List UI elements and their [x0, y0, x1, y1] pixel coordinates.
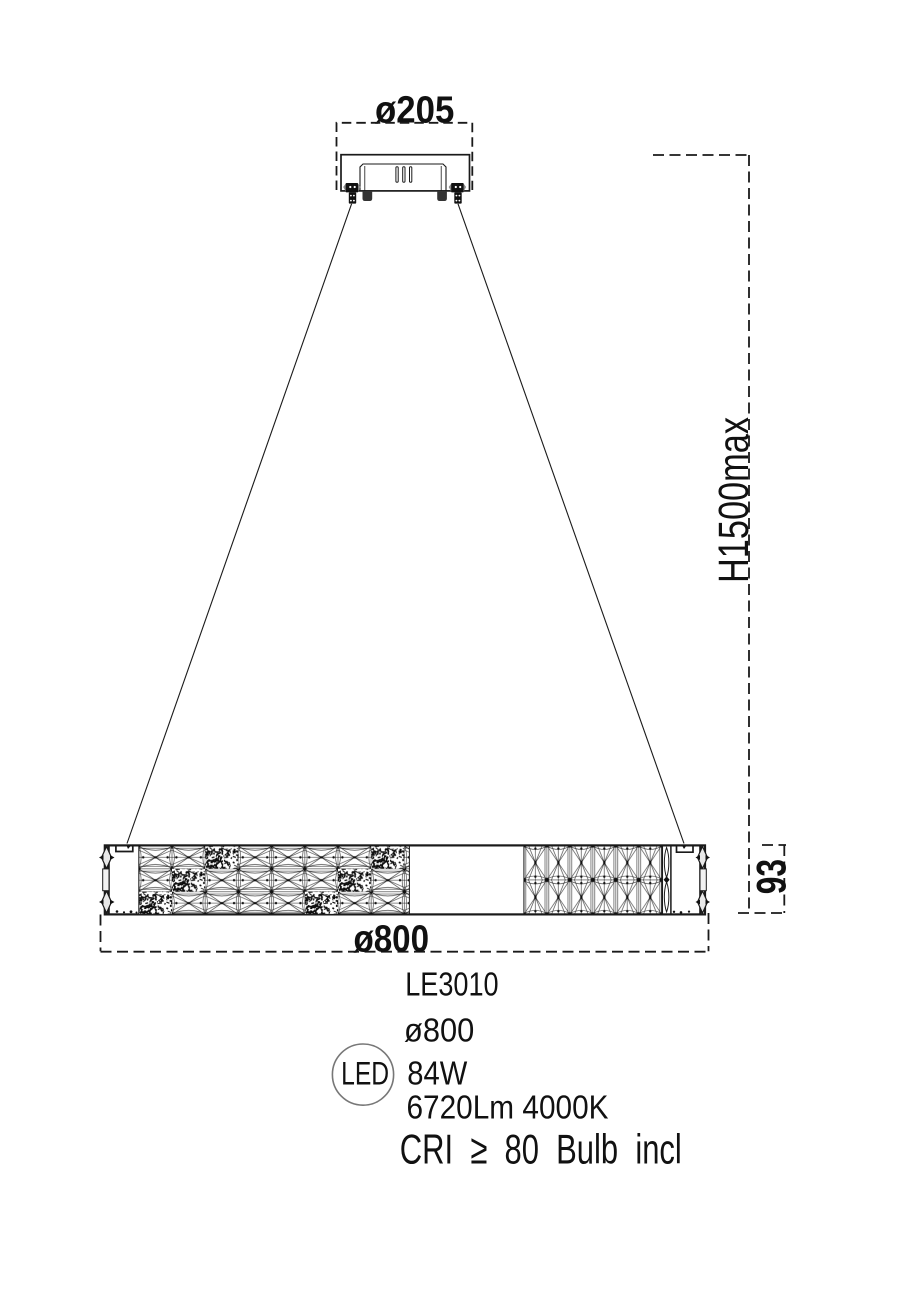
- svg-text:LE3010: LE3010: [405, 967, 498, 1004]
- svg-text:H1500max: H1500max: [710, 417, 758, 583]
- svg-text:6720Lm 4000K: 6720Lm 4000K: [407, 1090, 609, 1127]
- svg-text:LED: LED: [341, 1056, 389, 1092]
- svg-text:ø205: ø205: [375, 89, 454, 131]
- svg-text:ø800: ø800: [404, 1013, 474, 1050]
- svg-text:93: 93: [748, 859, 795, 894]
- svg-text:ø800: ø800: [354, 919, 430, 961]
- svg-text:84W: 84W: [407, 1056, 467, 1093]
- svg-text:CRI ≥ 80 Bulb incl: CRI ≥ 80 Bulb incl: [400, 1126, 682, 1173]
